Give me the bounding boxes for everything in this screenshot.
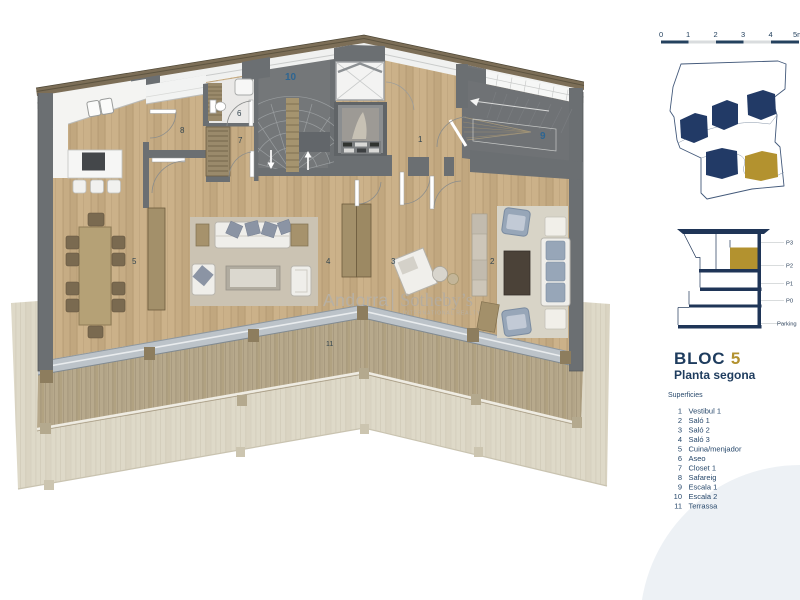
- svg-text:P2: P2: [786, 264, 793, 270]
- svg-text:Saló 3: Saló 3: [689, 435, 710, 444]
- svg-text:Sotheby’s: Sotheby’s: [400, 291, 473, 311]
- svg-text:Superficies: Superficies: [668, 392, 703, 399]
- svg-text:Cuina/menjador: Cuina/menjador: [689, 445, 742, 454]
- svg-text:2: 2: [490, 257, 495, 266]
- svg-text:3: 3: [391, 257, 396, 266]
- svg-text:Closet 1: Closet 1: [689, 464, 717, 473]
- svg-text:P3: P3: [786, 241, 793, 247]
- svg-text:11: 11: [674, 502, 682, 511]
- svg-text:10: 10: [285, 72, 297, 83]
- svg-text:7: 7: [238, 136, 243, 145]
- svg-text:6: 6: [237, 109, 242, 118]
- svg-text:Parking: Parking: [777, 322, 797, 328]
- svg-text:Escala 2: Escala 2: [689, 492, 718, 501]
- svg-text:Vestibul 1: Vestibul 1: [689, 407, 722, 416]
- svg-text:BLOC 5: BLOC 5: [674, 349, 741, 368]
- svg-text:9: 9: [678, 483, 682, 492]
- svg-text:P0: P0: [786, 299, 793, 305]
- svg-text:Terrassa: Terrassa: [689, 502, 719, 511]
- svg-text:11: 11: [326, 341, 333, 348]
- svg-text:4: 4: [326, 257, 331, 266]
- svg-text:INTERNATIONAL REALTY: INTERNATIONAL REALTY: [403, 311, 481, 317]
- svg-text:6: 6: [678, 454, 682, 463]
- svg-text:1: 1: [686, 30, 690, 39]
- svg-text:5m: 5m: [793, 30, 800, 39]
- svg-text:4: 4: [678, 435, 682, 444]
- svg-text:Safareig: Safareig: [689, 473, 717, 482]
- svg-text:Escala 1: Escala 1: [689, 483, 718, 492]
- svg-text:2: 2: [714, 30, 718, 39]
- svg-text:Planta segona: Planta segona: [674, 368, 756, 382]
- svg-text:7: 7: [678, 464, 682, 473]
- svg-text:1: 1: [418, 135, 423, 144]
- svg-text:8: 8: [180, 126, 185, 135]
- svg-text:5: 5: [132, 257, 137, 266]
- svg-text:1: 1: [678, 407, 682, 416]
- svg-text:10: 10: [674, 492, 682, 501]
- svg-text:4: 4: [769, 30, 773, 39]
- svg-text:2: 2: [678, 416, 682, 425]
- svg-text:9: 9: [540, 131, 546, 142]
- svg-text:0: 0: [659, 30, 663, 39]
- svg-text:Saló 2: Saló 2: [689, 426, 710, 435]
- svg-text:P1: P1: [786, 282, 793, 288]
- svg-text:Saló 1: Saló 1: [689, 416, 710, 425]
- svg-text:Andorra: Andorra: [323, 290, 389, 310]
- svg-text:3: 3: [741, 30, 745, 39]
- svg-text:8: 8: [678, 473, 682, 482]
- svg-text:5: 5: [678, 445, 682, 454]
- svg-text:3: 3: [678, 426, 682, 435]
- svg-text:Aseo: Aseo: [689, 454, 706, 463]
